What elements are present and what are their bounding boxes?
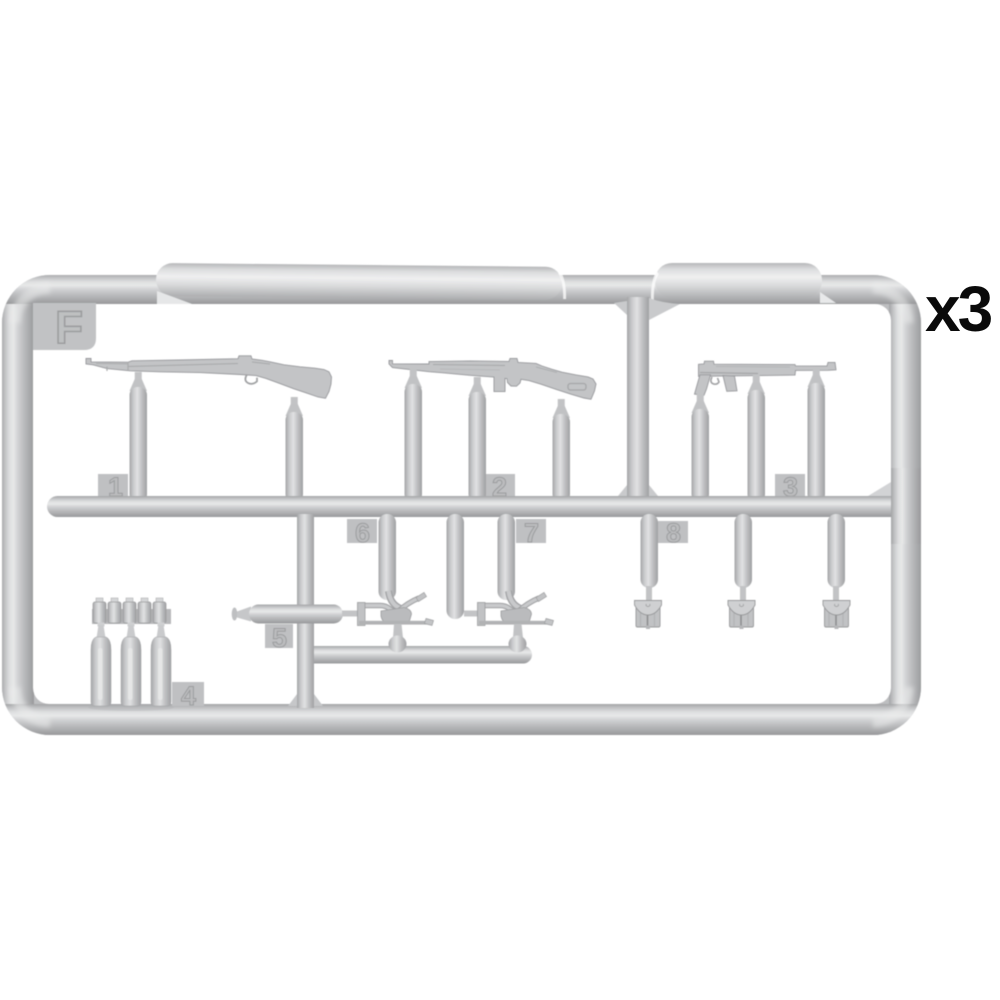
svg-text:5: 5 bbox=[272, 623, 287, 653]
svg-text:x3: x3 bbox=[925, 273, 992, 345]
svg-text:7: 7 bbox=[524, 518, 539, 548]
svg-text:6: 6 bbox=[355, 518, 370, 548]
svg-text:F: F bbox=[55, 301, 83, 353]
svg-text:8: 8 bbox=[666, 518, 681, 548]
svg-text:4: 4 bbox=[181, 681, 196, 711]
